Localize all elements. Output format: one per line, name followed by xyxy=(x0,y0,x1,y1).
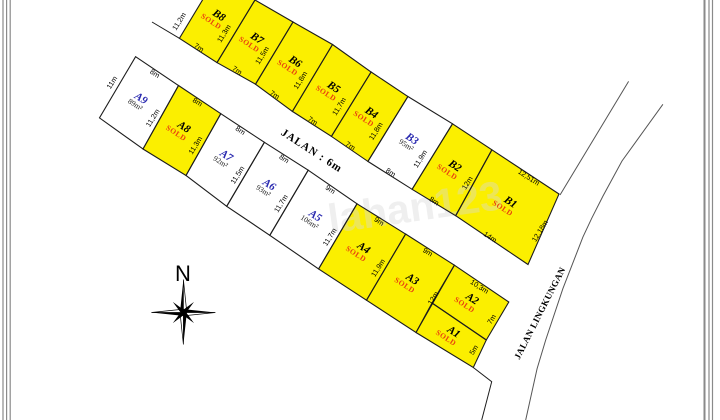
svg-text:N: N xyxy=(175,261,191,286)
